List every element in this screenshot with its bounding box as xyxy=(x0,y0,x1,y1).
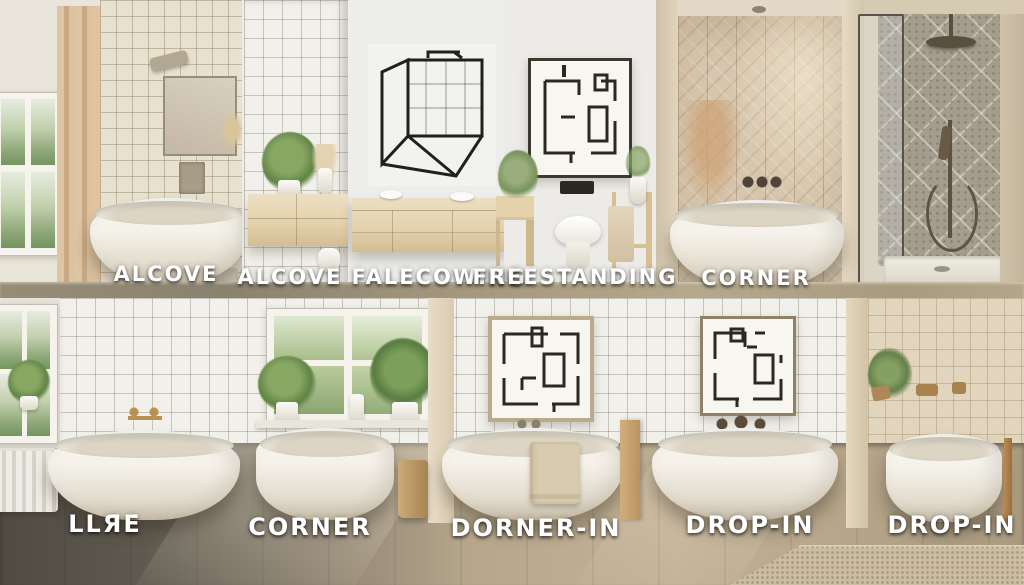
top-section-vanity xyxy=(242,0,504,298)
drawer-line xyxy=(248,218,348,219)
bottom-section-tub4 xyxy=(660,298,868,585)
sill-plant xyxy=(370,338,436,410)
floor-plan-lines xyxy=(531,61,629,175)
bathtub-type-label: CORNER xyxy=(701,266,811,290)
hanging-towel xyxy=(608,206,634,262)
top-section-alcove xyxy=(0,0,242,298)
window-pane xyxy=(0,311,22,369)
flush-plate xyxy=(560,181,594,194)
bathtub-type-label: DORNER-IN xyxy=(451,514,622,542)
wood-slat-divider xyxy=(620,420,640,520)
windowsill xyxy=(256,420,442,428)
header-beam xyxy=(864,0,1024,14)
window-pane xyxy=(31,99,55,165)
brass-fixture xyxy=(952,382,966,394)
top-section-shower xyxy=(864,0,1024,298)
window-pane xyxy=(1,172,25,248)
floor-plan-art xyxy=(528,58,632,178)
vase xyxy=(318,168,332,194)
window-pane xyxy=(274,316,344,360)
drop-in-bathtub xyxy=(652,428,838,520)
wooden-vase xyxy=(398,460,428,518)
drawer-line xyxy=(392,210,393,252)
bathtub-type-label: LLЯE xyxy=(68,510,141,538)
bathtub-type-label: CORNER xyxy=(248,513,371,541)
sink-basin xyxy=(380,190,402,199)
drawer-line xyxy=(296,194,297,246)
brass-fixture xyxy=(916,384,938,396)
sink-basin xyxy=(450,192,474,201)
bathtub-type-label: FREESTANDING xyxy=(473,265,678,289)
shower-glass-panel xyxy=(858,14,904,286)
corner-bathtub xyxy=(256,428,394,520)
counter-line xyxy=(352,210,506,211)
floor-plan-lines xyxy=(492,320,590,418)
window xyxy=(0,92,64,256)
floor-plan-art xyxy=(488,316,594,422)
faucet-panel xyxy=(179,162,205,194)
shower-arm xyxy=(949,14,953,40)
right-edge-wall xyxy=(1000,0,1024,298)
stool-plant xyxy=(498,150,538,202)
bathtub xyxy=(48,430,240,520)
drop-in-bathtub xyxy=(886,434,1002,522)
window-pane xyxy=(1,99,25,165)
vanity-cabinet-left xyxy=(248,194,348,246)
draped-towel xyxy=(530,442,580,504)
drain xyxy=(934,266,950,272)
bottom-section-tub2 xyxy=(240,298,460,585)
drawer-line xyxy=(452,210,453,252)
tub-faucet-valves xyxy=(742,172,782,192)
floor-plan-art xyxy=(700,316,796,416)
bathtub-type-label: DROP-IN xyxy=(686,511,815,539)
drawer-line xyxy=(352,232,506,233)
floor-plan-lines xyxy=(703,319,793,413)
bathtub-type-label: ALCOVE xyxy=(114,262,219,286)
beige-pillar xyxy=(846,298,868,528)
sill-vase xyxy=(350,394,364,422)
sketch-lines xyxy=(368,44,496,186)
shower-enclosure-sketch xyxy=(368,44,496,186)
vanity-cabinet-right xyxy=(352,198,506,252)
brass-faucet xyxy=(128,404,162,428)
sill-pot xyxy=(20,396,38,410)
top-section-corner xyxy=(656,0,864,298)
bathtub-type-label: DROP-IN xyxy=(888,511,1017,539)
ceiling-spotlight xyxy=(752,6,766,13)
bathtub-types-collage: ALCOVE ALCOVE FALECOWING FREESTANDING CO… xyxy=(0,0,1024,585)
bottom-section-tub5 xyxy=(868,298,1024,585)
wood-stool xyxy=(496,196,534,266)
dried-plant xyxy=(220,112,244,148)
sill-pot xyxy=(276,402,298,422)
stand-vase xyxy=(630,176,646,204)
vase-sprig xyxy=(626,146,650,180)
top-section-toilet xyxy=(504,0,656,298)
shower-hose-loop xyxy=(926,176,978,252)
window-pane xyxy=(31,172,55,248)
bottom-section-tub1 xyxy=(0,298,240,585)
wooden-stick xyxy=(1004,438,1012,522)
dried-pampas xyxy=(680,100,742,210)
